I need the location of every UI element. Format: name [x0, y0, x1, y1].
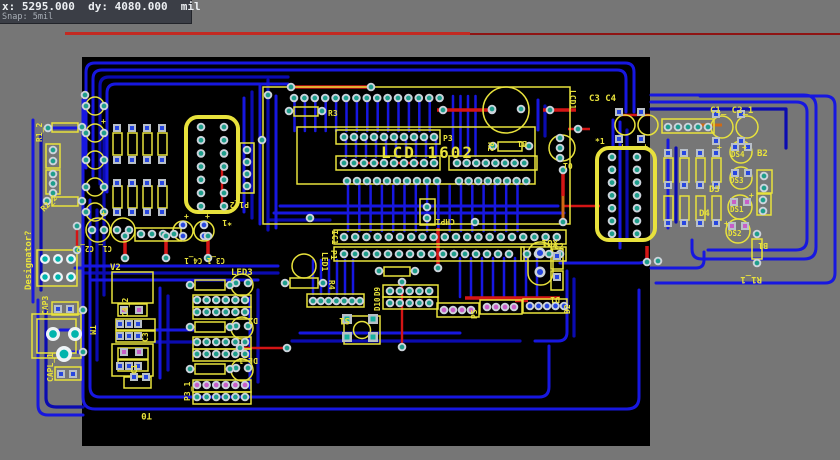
designator-c2[interactable]: C2 — [554, 242, 564, 251]
designator-lcd1[interactable]: LCD1 — [568, 90, 577, 109]
designator-r2[interactable]: R2 — [486, 142, 495, 152]
designator-p3-1[interactable]: P3_1 — [183, 382, 192, 401]
designator-d10[interactable]: D10 — [373, 297, 382, 311]
designator-c4-2[interactable]: C4_2 — [121, 298, 130, 317]
polarity-plus-mark: + — [101, 117, 106, 126]
cursor-coordinates: x: 5295.000 dy: 4080.000 mil — [2, 1, 189, 12]
designator-c3b[interactable]: C3 — [141, 332, 150, 342]
designator-c1b[interactable]: C1 — [130, 364, 139, 374]
designator-b1-right[interactable]: B1 — [758, 241, 768, 250]
designator-led1[interactable]: LED1 — [320, 252, 329, 271]
polarity-plus-mark: + — [620, 142, 625, 151]
designator-led3[interactable]: LED3 — [231, 268, 253, 278]
coordinate-readout: x: 5295.000 dy: 4080.000 mil Snap: 5mil — [0, 0, 192, 24]
polarity-plus-mark: + — [717, 143, 722, 152]
designator-c3c4[interactable]: C3 C4 — [589, 94, 617, 104]
designator-s1[interactable]: S1 — [339, 315, 350, 325]
polarity-plus-mark: + — [184, 212, 189, 221]
polarity-plus-mark: + — [101, 209, 106, 218]
designator-c1c2-2[interactable]: C1_ C2_2 — [76, 244, 112, 253]
designator-ds3[interactable]: DS3 — [730, 176, 744, 185]
designator-t0[interactable]: T0 — [563, 162, 573, 171]
designator-r3[interactable]: R3 — [328, 109, 338, 118]
designator-c3-1c4-1[interactable]: C3_1 C4_1 — [184, 256, 225, 265]
designator-chp1[interactable]: CHP1 — [436, 217, 455, 226]
designator-p1[interactable]: P1 — [329, 250, 338, 260]
designator-d9[interactable]: D9 — [373, 286, 382, 296]
designator-r1-2[interactable]: R1_2 — [35, 123, 44, 142]
polarity-plus-mark: + — [643, 142, 648, 151]
designator-p1-2[interactable]: P1_2 — [230, 200, 249, 209]
snap-grid-readout: Snap: 5mil — [2, 12, 189, 22]
designator-ds2[interactable]: DS2 — [728, 229, 742, 238]
designator-dl1[interactable]: DL_1 — [239, 356, 258, 365]
designator-d2b[interactable]: D2 — [248, 316, 258, 325]
designator-capl1[interactable]: CAPL_1 — [46, 353, 55, 382]
designator-tm[interactable]: TM — [88, 325, 97, 335]
pcb-editor-workspace: LCD 1602 LCD1 P3 R3 R2 B1 T0 C3 C4 *1 *1… — [0, 0, 840, 460]
designator-p3[interactable]: P3 — [443, 134, 453, 143]
pcb-canvas[interactable]: LCD 1602 LCD1 P3 R3 R2 B1 T0 C3 C4 *1 *1… — [0, 0, 840, 460]
polarity-plus-mark: + — [205, 212, 210, 221]
designator-cap3[interactable]: CAP3 — [41, 296, 50, 315]
designator-star1-right[interactable]: *1 — [595, 137, 605, 146]
designator-d1[interactable]: D1 — [550, 295, 560, 304]
designator-b2[interactable]: B2 — [757, 149, 768, 159]
designator-v2[interactable]: V2 — [110, 263, 121, 273]
designator-ic1[interactable]: IC1 — [330, 230, 339, 245]
designator-c1c2-1[interactable]: C1_ C2_1 — [710, 106, 753, 116]
designator-lcd-title[interactable]: LCD 1602 — [381, 143, 474, 162]
polarity-plus-mark: + — [742, 143, 747, 152]
polarity-plus-mark: + — [749, 191, 754, 200]
designator-ds1[interactable]: DS1 — [730, 205, 744, 214]
designator-text[interactable]: Designator? — [23, 230, 34, 290]
designator-d2[interactable]: D2 — [563, 304, 572, 314]
designator-p5[interactable]: P5 — [470, 309, 479, 319]
cursor-crosshair-line — [65, 34, 840, 35]
polarity-plus-mark: + — [724, 219, 729, 228]
designator-r1-1[interactable]: R1_1 — [740, 274, 762, 284]
designator-d3[interactable]: D3 — [709, 185, 720, 195]
designator-d4[interactable]: D4 — [699, 209, 710, 219]
designator-t0-bottom[interactable]: T0 — [141, 410, 152, 420]
designator-star1-left[interactable]: *1 — [222, 218, 232, 227]
designator-b1[interactable]: B1 — [517, 139, 527, 148]
designator-r4[interactable]: R4 — [327, 280, 336, 290]
